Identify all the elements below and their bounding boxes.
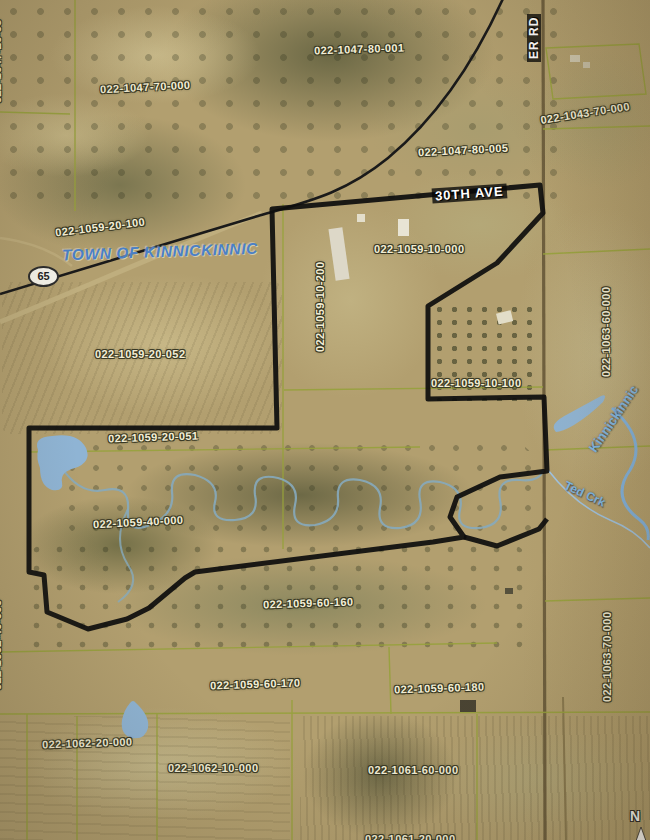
north-label: N	[630, 808, 640, 824]
parcel-label: 022-1061-60-000	[368, 764, 458, 776]
parcel-label: 022-1059-60-170	[210, 676, 301, 691]
parcel-label: 022-1063-60-000	[600, 287, 612, 377]
parcel-label: 022-1061-20-000	[365, 833, 455, 840]
parcel-label: 022-1063-70-000	[601, 612, 613, 702]
parcel-label: 022-1047-80-005	[418, 142, 509, 159]
town-name-label: TOWN OF KINNICKINNIC	[62, 240, 258, 265]
pond-west	[37, 435, 88, 490]
parcel-label: 022-1059-60-180	[394, 680, 485, 695]
north-arrow-icon	[636, 827, 646, 840]
highway-65-shield: 65	[28, 266, 59, 287]
parcel-map[interactable]: 022-1047-70-000 022-1047-80-001 022-1043…	[0, 0, 650, 840]
ted-creek-line	[548, 470, 650, 548]
parcel-label: 022-1059-10-000	[374, 243, 464, 255]
vignette	[0, 0, 650, 840]
river-name-label: Kinnickinnic	[586, 383, 642, 455]
parcel-label: 022-1047-70-000	[100, 79, 191, 96]
north-south-road	[543, 0, 545, 840]
parcel-label: 022-1059-10-100	[431, 377, 521, 389]
road-label-30th-ave: 30TH AVE	[432, 183, 508, 203]
furrows-bottom-left	[0, 716, 290, 840]
parcel-label: 022-1059-20-100	[55, 216, 146, 239]
parcel-label: 022-1059-20-052	[95, 348, 185, 360]
pond-south	[122, 701, 149, 738]
river-east	[612, 408, 648, 540]
dirt-track	[563, 697, 566, 840]
parcel-label: 022-1059-20-051	[108, 429, 199, 444]
road-label-er-rd: ER RD	[527, 14, 541, 62]
creek-name-label: Ted Crk	[562, 478, 608, 509]
furrows-bottom-right	[300, 716, 650, 840]
parcel-label: 022-1062-40-000	[0, 600, 3, 690]
woods-speckle-top	[0, 0, 560, 205]
parcel-label: 022-1059-10-200	[314, 262, 326, 352]
pond-east	[554, 395, 605, 432]
subject-property-boundary-spur	[464, 519, 547, 546]
parcel-label: 022-1062-10-000	[168, 762, 258, 774]
parcel-label: 022-1059-40-000	[93, 514, 184, 531]
parcel-label: 022-1047-20-05	[0, 19, 3, 103]
parcel-label: 022-1047-80-001	[314, 41, 405, 56]
parcel-label: 022-1043-70-000	[540, 100, 631, 126]
parcel-lines	[0, 0, 650, 840]
parcel-label: 022-1062-20-000	[42, 735, 133, 750]
parcel-label: 022-1059-60-160	[263, 595, 354, 610]
map-overlay	[0, 0, 650, 840]
